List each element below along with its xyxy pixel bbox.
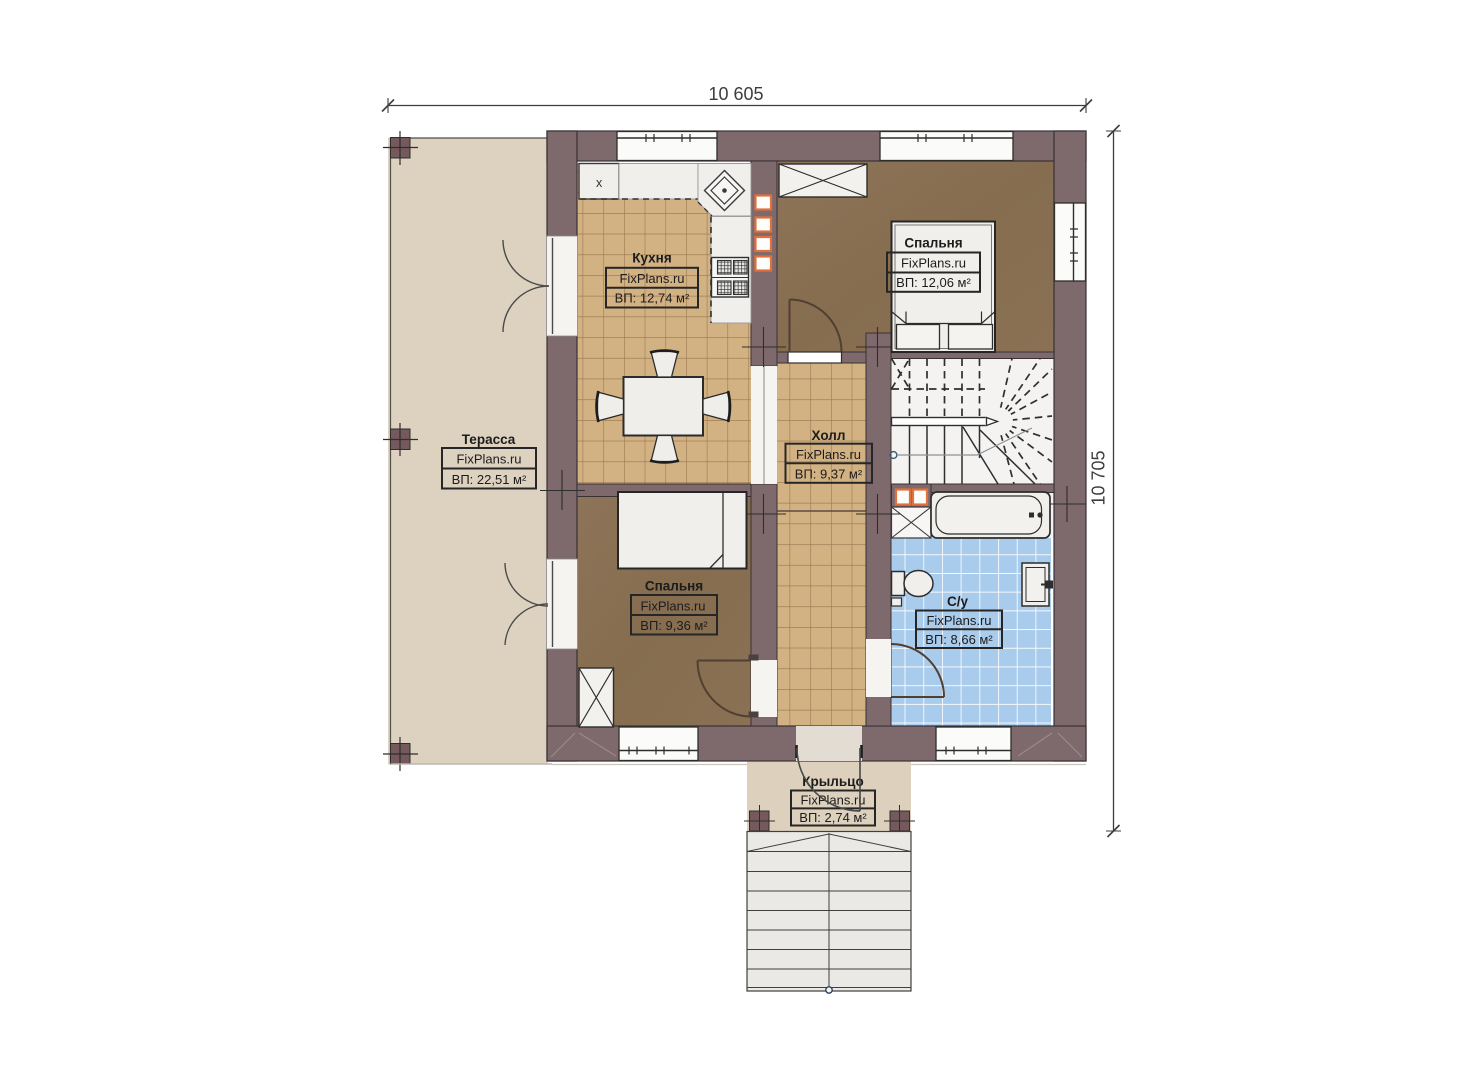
svg-text:FixPlans.ru: FixPlans.ru	[456, 452, 521, 467]
svg-text:Кухня: Кухня	[632, 251, 671, 266]
svg-text:FixPlans.ru: FixPlans.ru	[926, 613, 991, 628]
svg-text:FixPlans.ru: FixPlans.ru	[901, 256, 966, 271]
svg-text:FixPlans.ru: FixPlans.ru	[640, 599, 705, 614]
svg-text:FixPlans.ru: FixPlans.ru	[796, 447, 861, 462]
svg-text:10 605: 10 605	[708, 84, 763, 104]
svg-text:FixPlans.ru: FixPlans.ru	[619, 271, 684, 286]
svg-text:Терасса: Терасса	[462, 432, 516, 447]
svg-text:Спальня: Спальня	[645, 579, 703, 594]
svg-text:x: x	[596, 176, 603, 190]
svg-text:ВП: 22,51 м²: ВП: 22,51 м²	[452, 472, 527, 487]
svg-text:ВП: 2,74 м²: ВП: 2,74 м²	[799, 810, 867, 825]
svg-text:ВП: 12,74 м²: ВП: 12,74 м²	[615, 291, 690, 306]
svg-text:Холл: Холл	[812, 428, 846, 443]
svg-text:С/у: С/у	[947, 594, 969, 609]
svg-text:ВП: 12,06 м²: ВП: 12,06 м²	[896, 275, 971, 290]
svg-text:10 705: 10 705	[1089, 450, 1109, 505]
svg-text:Крыльцо: Крыльцо	[802, 774, 863, 789]
svg-text:ВП: 9,37 м²: ВП: 9,37 м²	[795, 466, 863, 481]
svg-text:ВП: 9,36 м²: ВП: 9,36 м²	[640, 618, 708, 633]
svg-text:Спальня: Спальня	[904, 236, 962, 251]
svg-text:ВП: 8,66 м²: ВП: 8,66 м²	[925, 632, 993, 647]
